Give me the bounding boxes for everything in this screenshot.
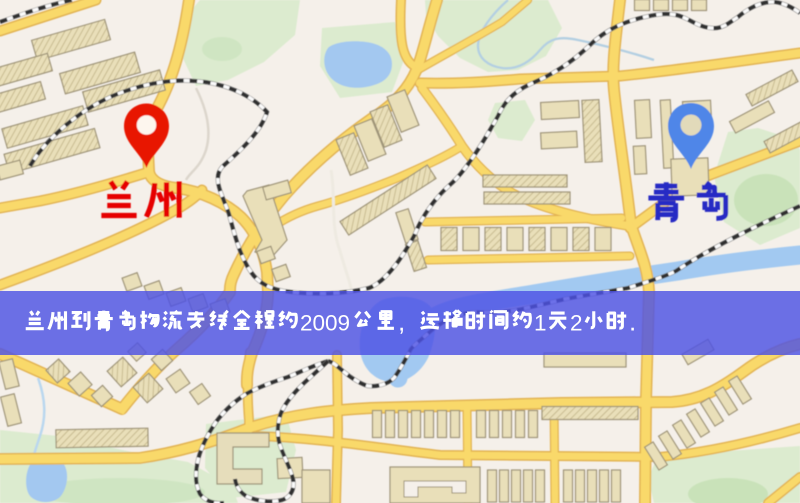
svg-text:1: 1	[534, 311, 547, 336]
svg-text:.: .	[629, 307, 636, 337]
svg-text:2: 2	[570, 311, 583, 336]
svg-text:2009: 2009	[300, 311, 350, 336]
svg-text:,: ,	[398, 307, 405, 337]
